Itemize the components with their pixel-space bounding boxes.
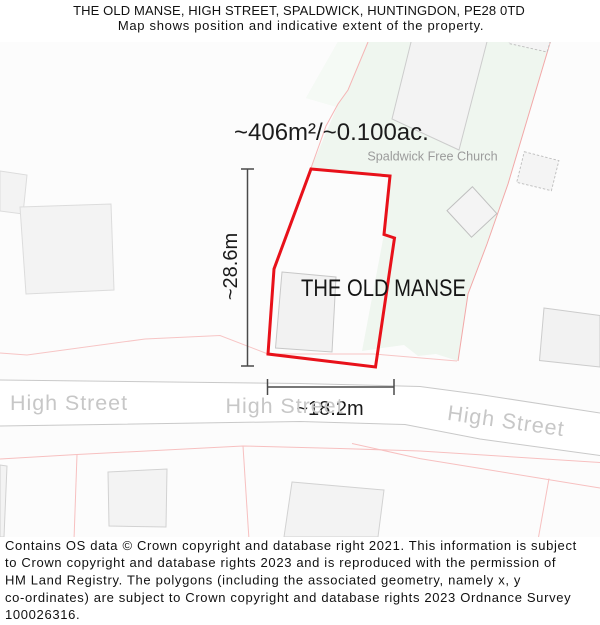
svg-text:HM Land Registry. The polygons: HM Land Registry. The polygons (includin…: [5, 573, 521, 588]
svg-text:to Crown copyright and databas: to Crown copyright and database rights 2…: [5, 555, 556, 570]
svg-text:THE OLD MANSE: THE OLD MANSE: [301, 275, 466, 302]
svg-text:High Street: High Street: [10, 391, 128, 415]
svg-text:~406m²/~0.100ac.: ~406m²/~0.100ac.: [234, 119, 429, 146]
svg-text:THE OLD MANSE, HIGH STREET, SP: THE OLD MANSE, HIGH STREET, SPALDWICK, H…: [73, 3, 525, 18]
svg-text:co-ordinates) are subject to C: co-ordinates) are subject to Crown copyr…: [5, 590, 571, 605]
svg-text:Contains OS data © Crown copyr: Contains OS data © Crown copyright and d…: [5, 538, 577, 553]
svg-text:~28.6m: ~28.6m: [220, 233, 242, 300]
svg-text:Map shows position and indicat: Map shows position and indicative extent…: [118, 18, 484, 33]
svg-text:High Street: High Street: [225, 394, 343, 418]
svg-text:100026316.: 100026316.: [5, 607, 80, 622]
svg-text:Spaldwick Free Church: Spaldwick Free Church: [367, 150, 497, 164]
